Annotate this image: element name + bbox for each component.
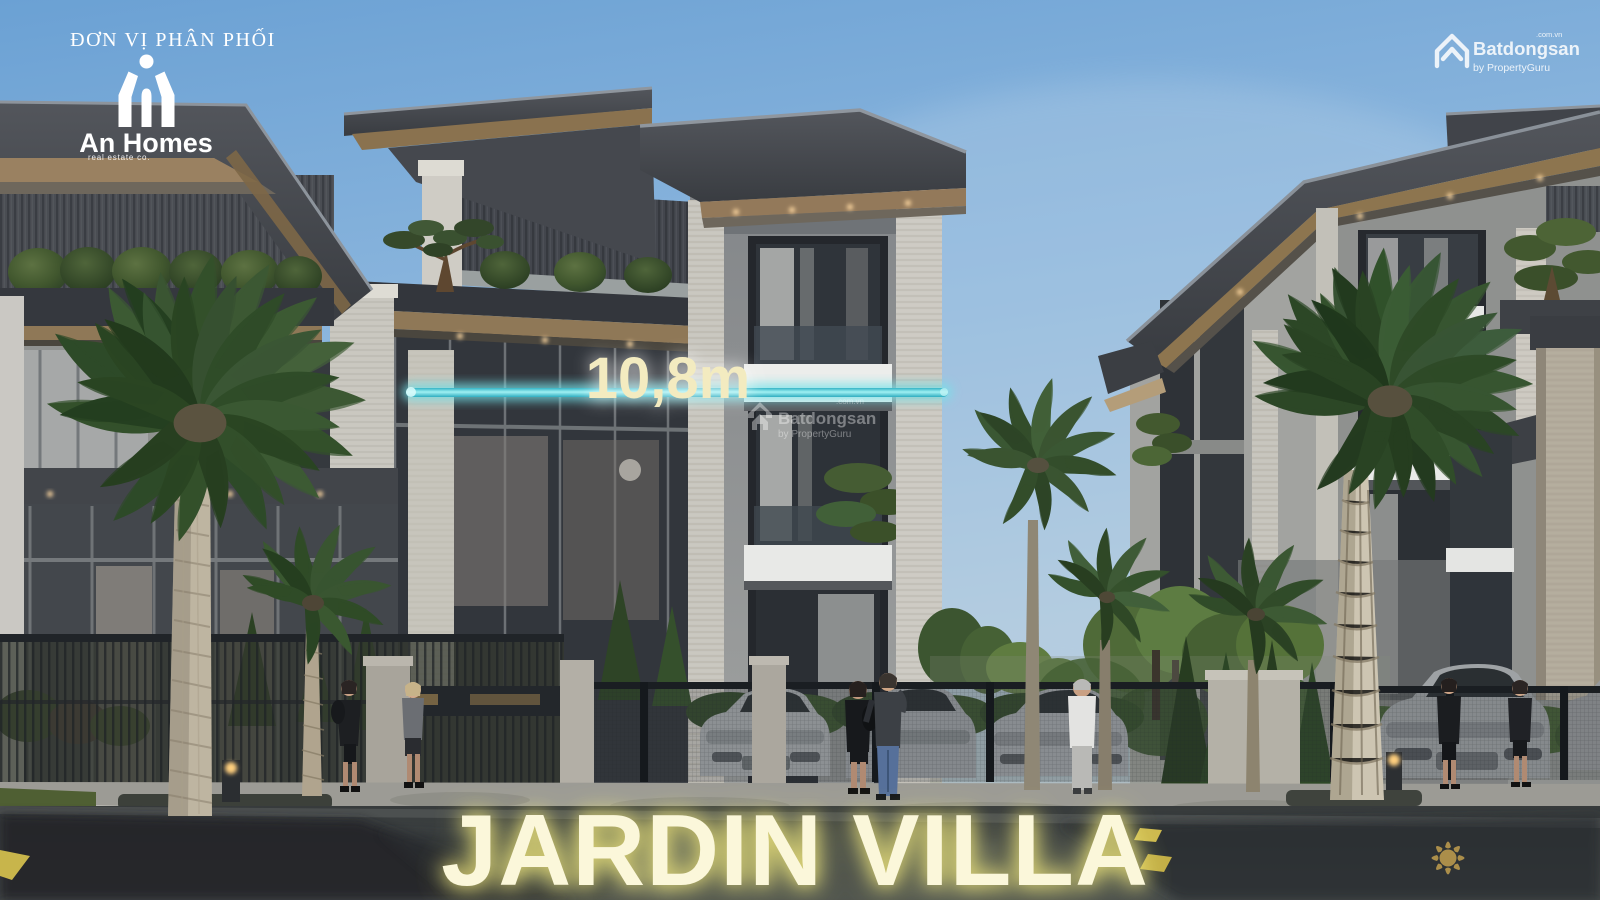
svg-text:JARDIN VILLA: JARDIN VILLA — [441, 795, 1149, 900]
svg-text:Batdongsan: Batdongsan — [778, 409, 876, 428]
svg-text:by PropertyGuru: by PropertyGuru — [778, 429, 851, 440]
svg-text:10,8m: 10,8m — [586, 346, 750, 411]
svg-text:.com.vn: .com.vn — [1536, 30, 1562, 39]
svg-text:Batdongsan: Batdongsan — [1473, 38, 1580, 59]
svg-text:by PropertyGuru: by PropertyGuru — [1473, 62, 1550, 74]
svg-text:ĐƠN VỊ PHÂN PHỐI: ĐƠN VỊ PHÂN PHỐI — [70, 27, 276, 51]
svg-text:.com.vn: .com.vn — [836, 397, 864, 406]
svg-text:real estate co.: real estate co. — [88, 153, 150, 162]
